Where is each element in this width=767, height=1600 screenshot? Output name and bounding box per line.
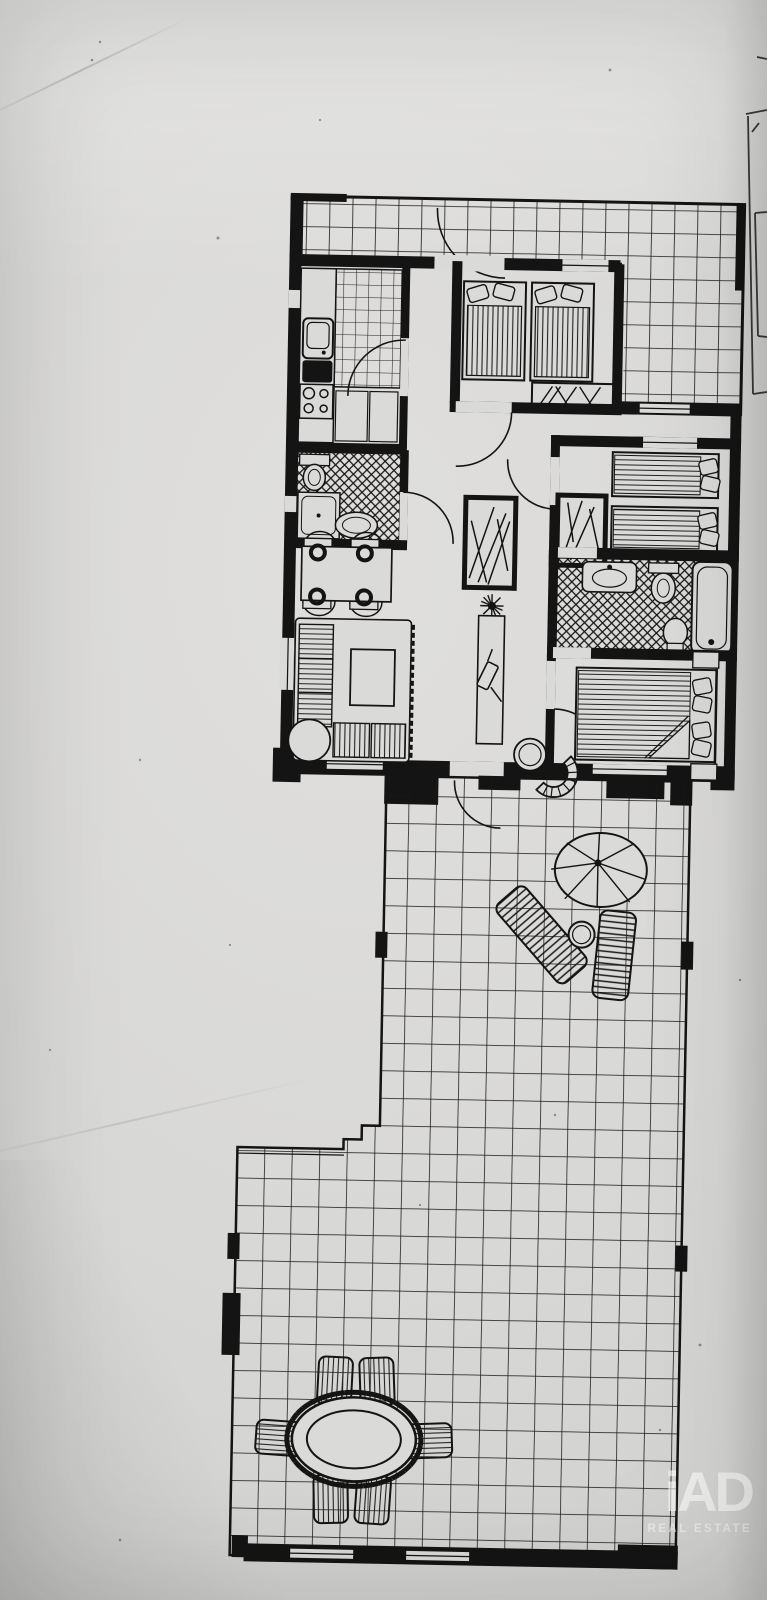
dining-table bbox=[301, 546, 392, 602]
nightstand bbox=[693, 652, 719, 668]
kitchen-cabinet bbox=[335, 391, 368, 442]
kitchen-cabinet bbox=[369, 391, 398, 442]
washbasin bbox=[335, 512, 377, 539]
coffee-table bbox=[350, 649, 395, 706]
bedroom-door-arc bbox=[457, 412, 512, 467]
bathroom-2 bbox=[547, 547, 739, 662]
kitchen bbox=[287, 258, 411, 454]
pillow bbox=[698, 458, 719, 476]
kitchen-drainer bbox=[302, 360, 332, 383]
toilet bbox=[651, 573, 676, 603]
bathroom-1 bbox=[285, 448, 455, 551]
adjacent-page-fragment bbox=[746, 57, 767, 394]
pillow bbox=[692, 695, 713, 713]
round-side-table bbox=[288, 719, 331, 762]
sofa-cushions-left bbox=[298, 624, 334, 727]
apartment-plan bbox=[218, 192, 746, 1570]
terraces bbox=[218, 773, 697, 1570]
toilet-tank bbox=[649, 563, 679, 574]
plant bbox=[481, 595, 503, 617]
nightstand bbox=[691, 764, 717, 780]
closet-with-hangers bbox=[464, 497, 516, 588]
kitchen-tiled-floor bbox=[334, 269, 402, 388]
sofa-cushion bbox=[333, 723, 370, 758]
toilet bbox=[303, 464, 325, 490]
bathroom-door-arc bbox=[403, 492, 454, 543]
pillow bbox=[691, 739, 712, 758]
living-room bbox=[288, 618, 414, 763]
sofa-cushion bbox=[371, 724, 406, 759]
pillow bbox=[697, 512, 718, 530]
oval-dining-table bbox=[291, 1396, 417, 1482]
bidet bbox=[663, 618, 688, 646]
floor-plan-photo: iAD REAL ESTATE bbox=[0, 0, 767, 1600]
floor-plan-drawing bbox=[0, 0, 767, 1600]
pillow bbox=[691, 722, 711, 740]
pillow bbox=[692, 677, 713, 695]
